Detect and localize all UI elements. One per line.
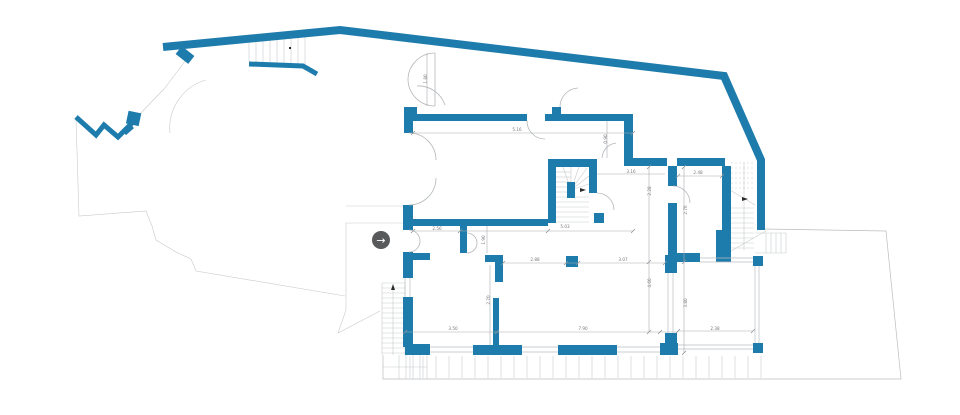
- arrow-right-icon: →: [376, 235, 385, 246]
- dimension-label: 2.38: [710, 326, 720, 331]
- floor-plan-canvas: 5.162.565.032.883.073.507.902.382.483.16…: [0, 0, 960, 415]
- dimension-label: 2.28: [647, 186, 652, 196]
- dimension-label: 4.60: [647, 278, 652, 288]
- zigzag-wall: [76, 117, 132, 137]
- dimension-label: 3.50: [448, 326, 458, 331]
- dimension-label: 3.80: [683, 298, 688, 308]
- stair-direction-arrow: [391, 284, 395, 290]
- dimension-lines-layer: [403, 53, 755, 355]
- dimension-labels-layer: 5.162.565.032.883.073.507.902.382.483.16…: [423, 74, 720, 331]
- terrace-post: [753, 343, 763, 353]
- walls-layer: [76, 30, 763, 355]
- stair-direction-arrow: [580, 188, 586, 192]
- dimension-label: 7.90: [578, 326, 588, 331]
- next-image-button[interactable]: →: [372, 231, 390, 249]
- dimension-label: 2.88: [530, 257, 540, 262]
- terrace-post: [753, 256, 763, 266]
- dimension-label: 0.90: [603, 134, 608, 144]
- slab-joints: [410, 356, 761, 378]
- floor-plan-viewer: 5.162.565.032.883.073.507.902.382.483.16…: [0, 0, 960, 415]
- dimension-label: 3.07: [618, 257, 628, 262]
- dimension-label: 2.56: [432, 226, 442, 231]
- exterior-stairs-layer: [249, 37, 786, 379]
- stair-retaining-wall: [249, 64, 317, 74]
- dimension-label: 2.76: [683, 205, 688, 215]
- dimension-label: 3.16: [626, 169, 636, 174]
- dimension-label: 2.48: [693, 170, 703, 175]
- windows-layer: [405, 258, 759, 352]
- zigzag-pier: [126, 111, 141, 126]
- dimension-label: 5.03: [560, 224, 570, 229]
- dimension-label: 2.70: [486, 295, 491, 305]
- dimension-label: 1.90: [481, 235, 486, 245]
- dimension-label: 1.80: [423, 74, 428, 84]
- stair-direction-dot: [289, 47, 291, 49]
- boundary-wall: [163, 30, 761, 230]
- stair-newel: [567, 182, 575, 198]
- dimension-label: 5.16: [512, 127, 522, 132]
